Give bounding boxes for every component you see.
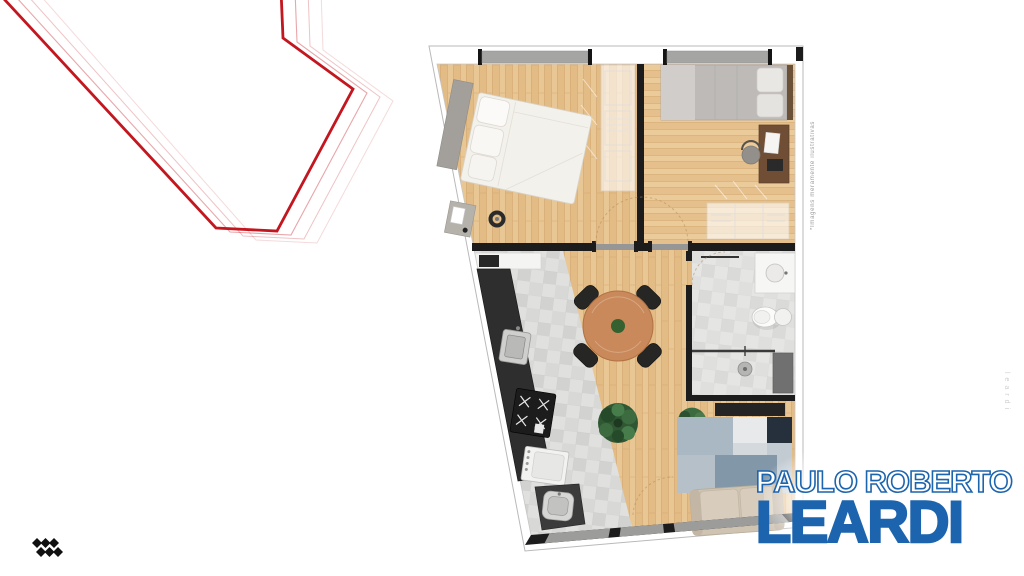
bathroom-wall (686, 251, 692, 261)
red-bold-line (0, 0, 353, 231)
sliding-door (596, 244, 634, 250)
countertop-appliance (479, 255, 499, 267)
pillow (476, 96, 511, 128)
bathroom-sink (766, 264, 784, 282)
leardi-logo: PAULO ROBERTO LEARDI (756, 466, 1012, 552)
logo-line-2: LEARDI (756, 494, 1012, 552)
pillow (467, 153, 497, 182)
desk-chair (742, 146, 760, 164)
window (667, 51, 768, 63)
pillow (469, 124, 504, 158)
washing-machine (521, 446, 569, 486)
door-jamb (648, 241, 652, 252)
red-echo-line (19, 0, 380, 239)
door-jamb (634, 241, 638, 252)
window (482, 51, 588, 63)
bathroom-wall (686, 395, 795, 401)
hall-wall (472, 243, 592, 251)
door-jamb (592, 241, 596, 252)
papers (764, 132, 780, 153)
red-echo-line (6, 0, 367, 235)
stove (510, 388, 556, 438)
bedside-ledge (787, 65, 793, 120)
bedroom-divider-wall (637, 64, 644, 243)
shower-bench (773, 353, 793, 393)
laptop (767, 159, 783, 171)
red-line-art (0, 0, 410, 270)
nightstand (444, 201, 476, 237)
disclaimer-text: *Imagens meramente ilustrativas (810, 58, 816, 230)
tv-console (715, 403, 785, 416)
floor-plant-large (598, 403, 638, 443)
wardrobe (601, 65, 635, 191)
red-echo-line (32, 0, 393, 243)
door-jamb (688, 241, 692, 252)
bathroom-wall (686, 285, 692, 395)
table-plant (611, 319, 625, 333)
pillow (757, 68, 783, 92)
page: *Imagens meramente ilustrativas leardi P… (0, 0, 1024, 576)
pillow (757, 94, 783, 117)
toilet-tank (775, 309, 792, 326)
utility-sink (542, 491, 575, 522)
sliding-door (652, 244, 688, 250)
diamond-cluster-icon (28, 534, 68, 562)
dining-area (571, 283, 664, 370)
